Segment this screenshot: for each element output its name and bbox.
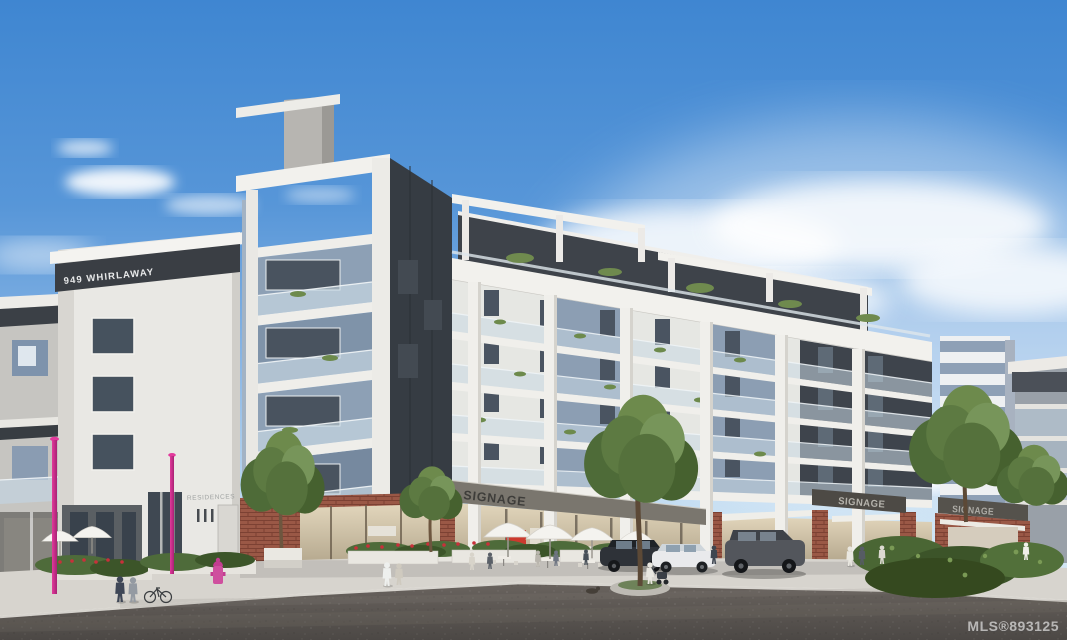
mls-watermark: MLS®893125 MLS®893125 — [967, 618, 1060, 635]
property-photo: 949 WHIRLAWAY RESIDENCES — [0, 0, 1067, 640]
building-949-windows — [92, 318, 134, 470]
watermark-text: MLS®893125 — [967, 618, 1059, 634]
